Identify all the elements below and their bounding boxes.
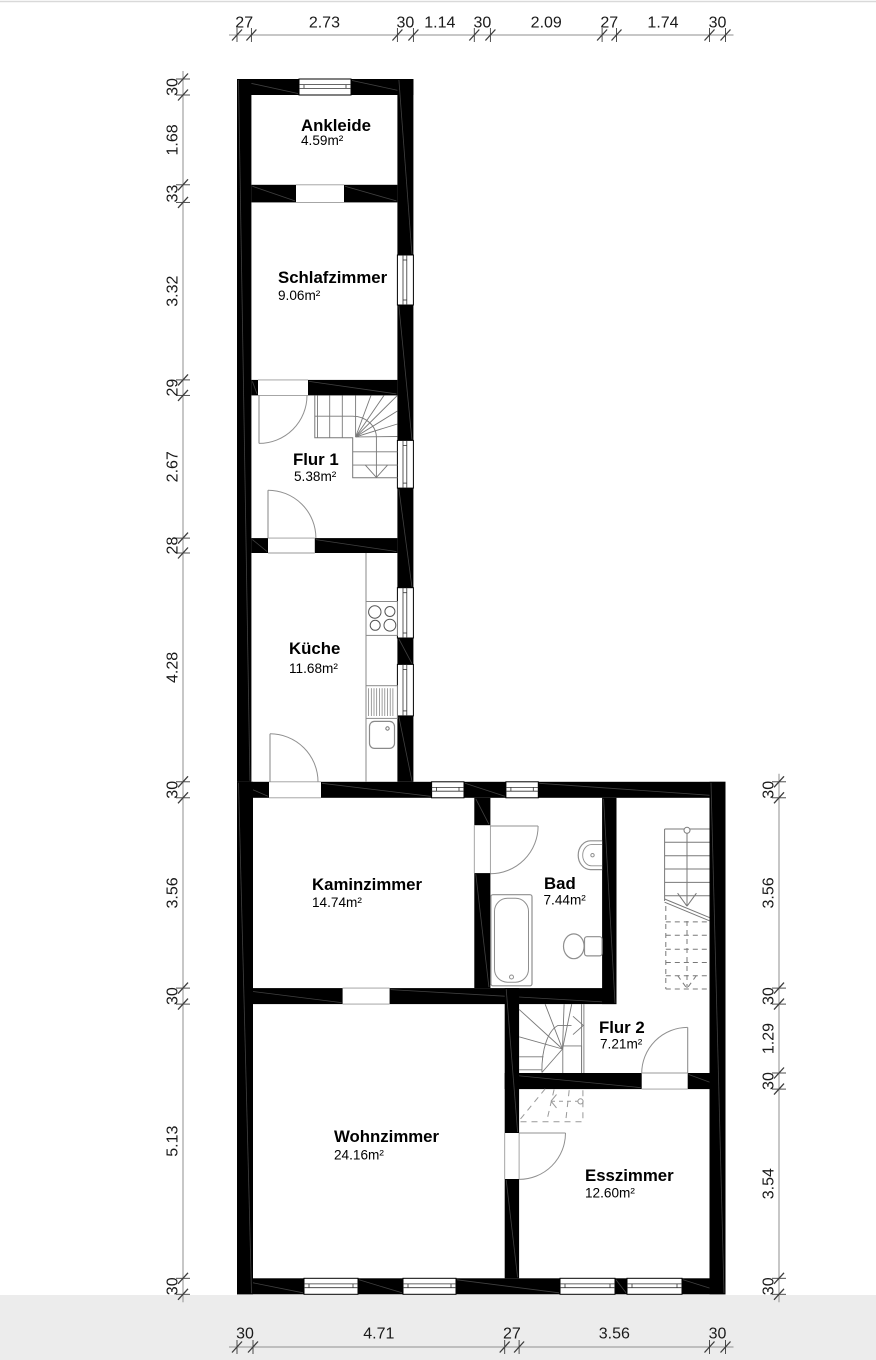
svg-text:5.13: 5.13 <box>165 1126 182 1157</box>
svg-text:2.67: 2.67 <box>165 451 182 482</box>
svg-text:1.68: 1.68 <box>165 124 182 155</box>
svg-text:Flur 2: Flur 2 <box>599 1018 645 1037</box>
svg-text:Kaminzimmer: Kaminzimmer <box>312 875 423 894</box>
svg-text:30: 30 <box>165 1277 182 1295</box>
svg-text:30: 30 <box>236 1326 254 1343</box>
svg-text:30: 30 <box>709 1326 727 1343</box>
svg-text:Küche: Küche <box>289 639 340 658</box>
svg-text:3.56: 3.56 <box>599 1326 630 1343</box>
svg-text:Wohnzimmer: Wohnzimmer <box>334 1127 440 1146</box>
svg-text:3.56: 3.56 <box>761 877 778 908</box>
svg-text:30: 30 <box>165 781 182 799</box>
svg-text:Flur 1: Flur 1 <box>293 450 339 469</box>
svg-text:4.71: 4.71 <box>363 1326 394 1343</box>
svg-text:30: 30 <box>397 15 415 32</box>
svg-text:30: 30 <box>473 15 491 32</box>
svg-text:Schlafzimmer: Schlafzimmer <box>278 268 388 287</box>
svg-text:7.21m²: 7.21m² <box>600 1037 643 1052</box>
svg-text:27: 27 <box>235 15 253 32</box>
svg-text:30: 30 <box>761 1277 778 1295</box>
svg-text:12.60m²: 12.60m² <box>585 1186 635 1201</box>
svg-text:3.32: 3.32 <box>165 275 182 306</box>
svg-text:30: 30 <box>165 987 182 1005</box>
svg-text:29: 29 <box>165 379 182 397</box>
svg-text:1.14: 1.14 <box>424 15 455 32</box>
svg-text:27: 27 <box>503 1326 521 1343</box>
svg-text:24.16m²: 24.16m² <box>334 1147 384 1162</box>
svg-text:7.44m²: 7.44m² <box>544 893 587 908</box>
svg-text:Bad: Bad <box>544 874 576 893</box>
svg-text:3.56: 3.56 <box>165 877 182 908</box>
svg-text:1.29: 1.29 <box>761 1023 778 1054</box>
svg-text:27: 27 <box>600 15 618 32</box>
svg-text:1.74: 1.74 <box>647 15 678 32</box>
svg-text:30: 30 <box>761 781 778 799</box>
svg-text:2.73: 2.73 <box>309 15 340 32</box>
svg-text:30: 30 <box>761 987 778 1005</box>
svg-text:30: 30 <box>761 1072 778 1090</box>
svg-text:4.28: 4.28 <box>165 652 182 683</box>
svg-text:3.54: 3.54 <box>761 1168 778 1199</box>
svg-text:4.59m²: 4.59m² <box>301 133 344 148</box>
svg-text:11.68m²: 11.68m² <box>289 661 338 676</box>
svg-text:33: 33 <box>165 185 182 203</box>
svg-text:30: 30 <box>709 15 727 32</box>
svg-text:30: 30 <box>165 78 182 96</box>
svg-text:5.38m²: 5.38m² <box>294 469 337 484</box>
svg-text:2.09: 2.09 <box>531 15 562 32</box>
svg-text:Esszimmer: Esszimmer <box>585 1166 674 1185</box>
svg-text:9.06m²: 9.06m² <box>278 288 321 303</box>
svg-text:14.74m²: 14.74m² <box>312 895 362 910</box>
svg-text:28: 28 <box>165 537 182 555</box>
